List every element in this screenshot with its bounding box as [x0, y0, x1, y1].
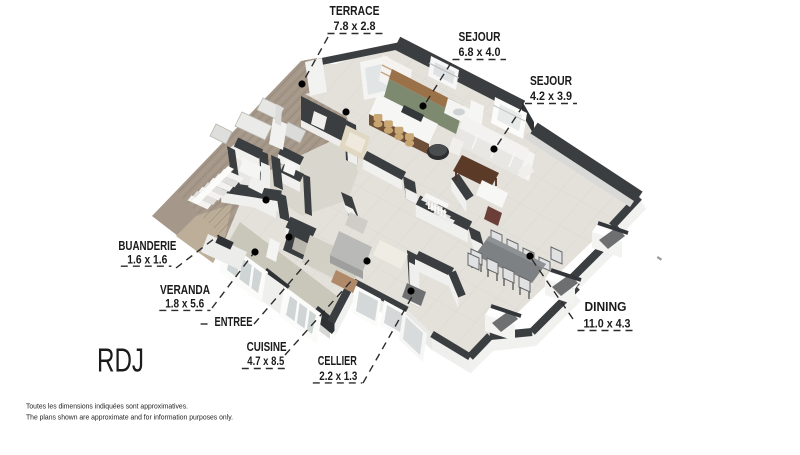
svg-text:TERRACE: TERRACE: [330, 3, 380, 18]
svg-text:1.8 x 5.6: 1.8 x 5.6: [165, 297, 204, 311]
svg-text:The plans shown are approximat: The plans shown are approximate and for …: [26, 413, 233, 422]
svg-text:CELLIER: CELLIER: [318, 353, 357, 368]
svg-text:4.2 x 3.9: 4.2 x 3.9: [530, 89, 572, 103]
svg-text:SEJOUR: SEJOUR: [459, 29, 501, 44]
svg-text:Toutes les dimensions indiquée: Toutes les dimensions indiquées sont app…: [26, 402, 188, 411]
svg-text:VERANDA: VERANDA: [160, 282, 210, 297]
svg-text:DINING: DINING: [585, 299, 627, 314]
svg-text:SEJOUR: SEJOUR: [530, 73, 572, 88]
svg-text:ENTREE: ENTREE: [215, 314, 253, 329]
svg-text:11.0 x 4.3: 11.0 x 4.3: [584, 317, 631, 331]
svg-text:7.8 x 2.8: 7.8 x 2.8: [334, 19, 376, 33]
svg-text:RDJ: RDJ: [97, 342, 144, 379]
svg-text:2.2 x 1.3: 2.2 x 1.3: [319, 369, 357, 383]
svg-text:6.8 x 4.0: 6.8 x 4.0: [459, 45, 501, 59]
svg-text:CUISINE: CUISINE: [247, 339, 287, 354]
svg-text:1.6 x 1.6: 1.6 x 1.6: [127, 252, 167, 266]
svg-text:4.7 x 8.5: 4.7 x 8.5: [247, 354, 284, 368]
svg-text:BUANDERIE: BUANDERIE: [118, 238, 176, 253]
